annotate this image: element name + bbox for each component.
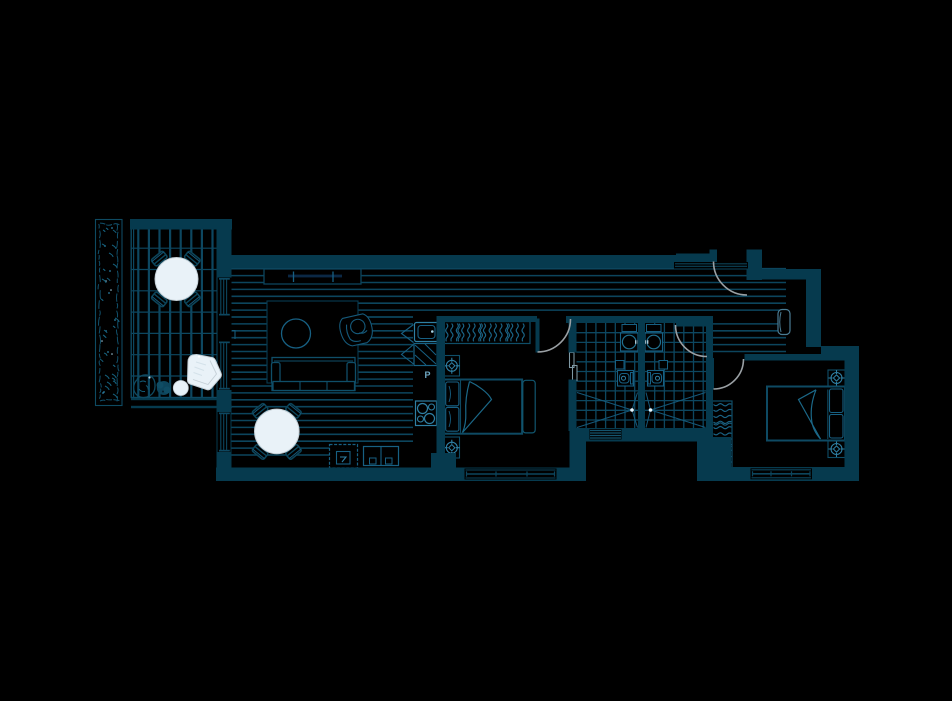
svg-text:P: P xyxy=(425,370,431,380)
